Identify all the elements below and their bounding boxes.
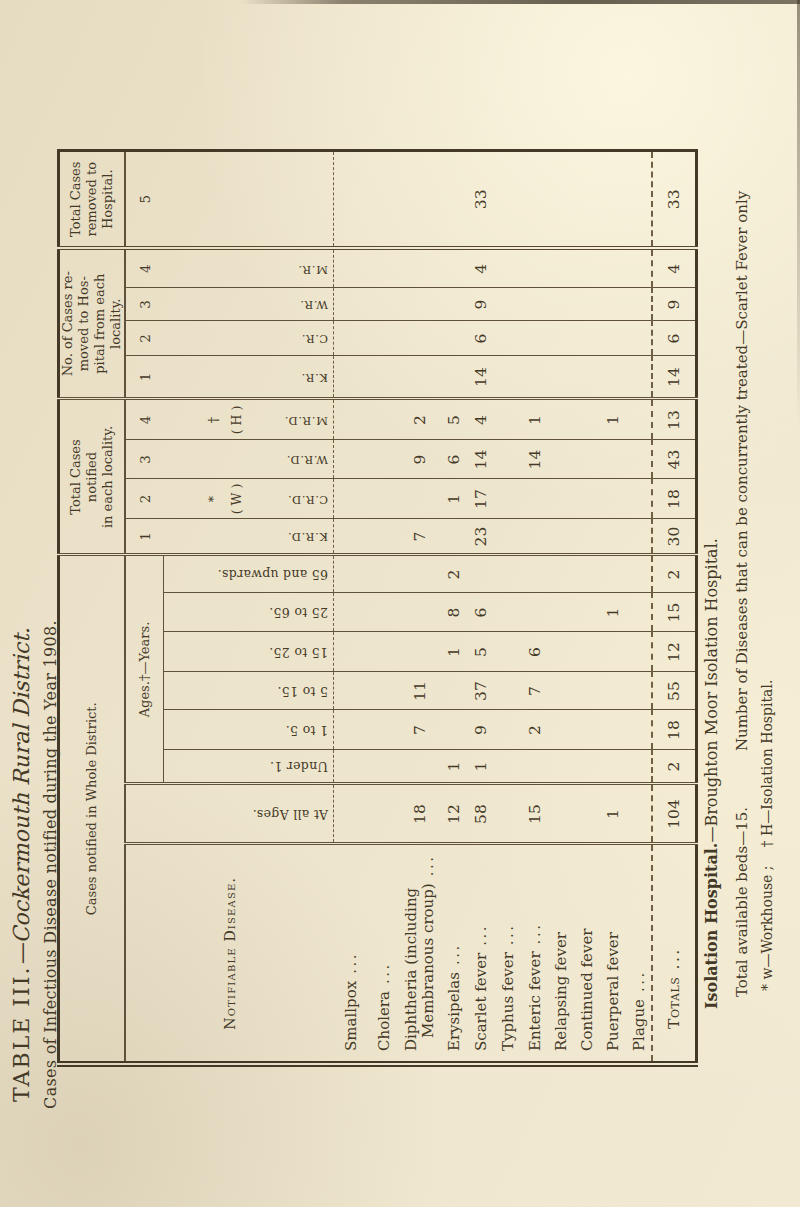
data-cell	[369, 248, 398, 288]
data-cell: 14	[652, 356, 696, 399]
infectious-disease-table: Cases notified in Whole District. Total …	[57, 150, 698, 1068]
data-cell	[548, 288, 574, 321]
data-cell	[626, 356, 652, 399]
data-cell: 6	[467, 593, 494, 632]
disease-name-cell: Diphtheria (includingMembranous croup)..…	[398, 844, 441, 1064]
data-cell	[548, 479, 574, 519]
data-cell	[398, 593, 441, 632]
locality-initials-krd: K.R.D.	[163, 519, 333, 555]
locality-initials-kr: K.R.	[163, 356, 333, 399]
age-label-65-up: 65 and upwards.	[163, 555, 333, 593]
data-cell	[333, 399, 369, 440]
data-cell: 7	[398, 710, 441, 750]
data-cell	[548, 248, 574, 288]
data-cell: 4	[467, 248, 494, 288]
data-cell	[574, 672, 599, 710]
data-cell	[521, 151, 548, 248]
data-cell	[599, 519, 626, 555]
data-cell	[398, 321, 441, 356]
disease-row: Erysipelas...121182165	[441, 151, 467, 1064]
data-cell	[599, 750, 626, 784]
header-removed-locality: No. of Cases re- moved to Hos- pital fro…	[59, 248, 126, 399]
data-cell	[369, 672, 398, 710]
data-cell	[398, 288, 441, 321]
col-number-total-removed: 5	[125, 151, 163, 248]
data-cell	[599, 632, 626, 672]
col-number-crd: 2	[125, 479, 163, 519]
data-cell: 7	[398, 519, 441, 555]
data-cell	[574, 519, 599, 555]
data-cell	[574, 710, 599, 750]
isolation-hospital-mark: †( H )	[203, 401, 248, 440]
col-number-kr: 1	[125, 356, 163, 399]
data-cell	[599, 672, 626, 710]
data-cell	[398, 750, 441, 784]
header-notified-locality: Total Cases notified in each locality.	[59, 399, 126, 555]
locality-initials-crd: *( W ) C.R.D.	[163, 479, 333, 519]
data-cell: 18	[398, 784, 441, 844]
data-cell	[369, 479, 398, 519]
data-cell	[333, 440, 369, 479]
data-cell	[398, 479, 441, 519]
data-cell	[494, 519, 521, 555]
data-cell	[369, 710, 398, 750]
data-cell: 6	[652, 321, 696, 356]
disease-name-cell: Cholera...	[369, 844, 398, 1064]
data-cell	[333, 593, 369, 632]
data-cell	[521, 555, 548, 593]
data-cell	[599, 248, 626, 288]
data-cell: 5	[441, 399, 467, 440]
data-cell	[494, 672, 521, 710]
data-cell	[441, 710, 467, 750]
data-cell	[441, 356, 467, 399]
data-cell	[548, 593, 574, 632]
disease-name-cell: Erysipelas...	[441, 844, 467, 1064]
data-cell: 14	[467, 440, 494, 479]
locality-initials-wr: W.R.	[163, 288, 333, 321]
header-whole-district: Cases notified in Whole District.	[59, 555, 126, 1064]
data-cell	[521, 750, 548, 784]
header-at-all-ages: At all Ages.	[125, 784, 333, 844]
data-cell	[574, 555, 599, 593]
data-cell	[548, 672, 574, 710]
footnote-beds: Total available beds—15.Number of Diseas…	[733, 191, 751, 997]
data-cell	[626, 151, 652, 248]
data-cell	[333, 151, 369, 248]
data-cell: 13	[652, 399, 696, 440]
data-cell	[574, 288, 599, 321]
data-cell: 1	[467, 750, 494, 784]
table-number: TABLE III.	[9, 966, 34, 1102]
data-cell	[599, 151, 626, 248]
data-cell	[626, 519, 652, 555]
disease-row: Enteric fever...15276141	[521, 151, 548, 1064]
data-cell	[521, 288, 548, 321]
page-title-block: TABLE III.—Cockermouth Rural District. C…	[9, 562, 60, 1167]
data-cell	[521, 248, 548, 288]
data-cell: 2	[652, 555, 696, 593]
data-cell	[548, 519, 574, 555]
data-cell: 1	[599, 399, 626, 440]
data-cell	[494, 440, 521, 479]
data-cell	[626, 479, 652, 519]
disease-name-cell: Puerperal fever	[599, 844, 626, 1064]
age-label-5-15: 5 to 15.	[163, 672, 333, 710]
data-cell: 58	[467, 784, 494, 844]
data-cell: 33	[652, 151, 696, 248]
age-label-25-65: 25 to 65.	[163, 593, 333, 632]
data-cell	[441, 248, 467, 288]
footnote-isolation-hospital: Isolation Hospital.—Broughton Moor Isola…	[702, 538, 721, 1009]
data-cell: 4	[652, 248, 696, 288]
data-cell	[626, 672, 652, 710]
data-cell	[494, 784, 521, 844]
data-cell	[521, 593, 548, 632]
data-cell	[574, 593, 599, 632]
data-cell: 2	[521, 710, 548, 750]
totals-row: Totals...1042185512152301843131469433	[652, 151, 696, 1064]
data-cell	[494, 750, 521, 784]
data-cell: 1	[521, 399, 548, 440]
data-cell: 1	[441, 750, 467, 784]
disease-row: Puerperal fever111	[599, 151, 626, 1064]
data-cell	[626, 710, 652, 750]
data-cell	[521, 321, 548, 356]
data-cell: 17	[467, 479, 494, 519]
data-cell	[574, 784, 599, 844]
data-cell	[467, 555, 494, 593]
data-cell	[574, 632, 599, 672]
data-cell	[441, 288, 467, 321]
data-cell	[369, 151, 398, 248]
data-cell: 7	[521, 672, 548, 710]
data-cell: 6	[521, 632, 548, 672]
data-cell: 43	[652, 440, 696, 479]
data-cell: 6	[467, 321, 494, 356]
data-cell	[599, 440, 626, 479]
data-cell	[599, 555, 626, 593]
data-cell: 12	[441, 784, 467, 844]
data-cell	[369, 440, 398, 479]
data-cell	[548, 784, 574, 844]
data-cell	[333, 632, 369, 672]
disease-row: Continued fever	[574, 151, 599, 1064]
data-cell: 9	[652, 288, 696, 321]
data-cell: 18	[652, 479, 696, 519]
data-cell	[574, 399, 599, 440]
data-cell	[369, 321, 398, 356]
locality-initials-mrd: †( H ) M.R.D.	[163, 399, 333, 440]
disease-row: Scarlet fever...5819375623171441469433	[467, 151, 494, 1064]
data-cell	[369, 399, 398, 440]
data-cell	[626, 555, 652, 593]
locality-initials-wrd: W.R.D.	[163, 440, 333, 479]
data-cell: 33	[467, 151, 494, 248]
data-cell: 14	[467, 356, 494, 399]
disease-name-cell: Continued fever	[574, 844, 599, 1064]
disease-name-cell: Totals...	[652, 844, 696, 1064]
data-cell: 14	[521, 440, 548, 479]
data-cell: 9	[398, 440, 441, 479]
data-cell	[494, 632, 521, 672]
disease-row: Typhus fever...	[494, 151, 521, 1064]
data-cell	[494, 288, 521, 321]
data-cell: 9	[467, 710, 494, 750]
data-cell	[369, 555, 398, 593]
data-cell	[398, 248, 441, 288]
data-cell	[494, 479, 521, 519]
data-cell: 1	[441, 479, 467, 519]
footnote-abbreviations: * w—Workhouse ;† H—Isolation Hospital.	[759, 680, 775, 991]
data-cell: 2	[652, 750, 696, 784]
data-cell: 2	[398, 399, 441, 440]
data-cell	[333, 321, 369, 356]
data-cell: 37	[467, 672, 494, 710]
scanned-report-page: { "title": { "table_no": "TABLE III.", "…	[0, 0, 800, 1207]
disease-name-cell: Relapsing fever	[548, 844, 574, 1064]
disease-name-cell: Smallpox...	[333, 844, 369, 1064]
header-ages-years: Ages.†—Years.	[125, 555, 163, 784]
data-cell	[441, 672, 467, 710]
data-cell	[441, 321, 467, 356]
col-number-mr: 4	[125, 248, 163, 288]
data-cell	[369, 750, 398, 784]
data-cell	[521, 356, 548, 399]
data-cell	[548, 151, 574, 248]
data-cell	[626, 248, 652, 288]
data-cell	[369, 632, 398, 672]
table-header: Cases notified in Whole District. Total …	[59, 151, 334, 1064]
col-number-wrd: 3	[125, 440, 163, 479]
data-cell	[548, 440, 574, 479]
data-cell	[548, 321, 574, 356]
data-cell	[398, 555, 441, 593]
data-cell	[494, 710, 521, 750]
data-cell: 8	[441, 593, 467, 632]
data-cell: 18	[652, 710, 696, 750]
data-cell	[599, 479, 626, 519]
data-cell	[369, 519, 398, 555]
data-cell	[333, 555, 369, 593]
scan-edge-top	[240, 0, 800, 4]
data-cell: 11	[398, 672, 441, 710]
data-cell: 104	[652, 784, 696, 844]
empty-header-cell	[163, 151, 333, 248]
disease-row: Cholera...	[369, 151, 398, 1064]
age-label-under-1: Under 1.	[163, 750, 333, 784]
data-cell: 4	[467, 399, 494, 440]
data-cell	[574, 750, 599, 784]
data-cell	[333, 479, 369, 519]
data-cell	[494, 593, 521, 632]
data-cell	[626, 288, 652, 321]
data-cell	[599, 288, 626, 321]
data-cell	[521, 519, 548, 555]
data-cell	[398, 632, 441, 672]
data-cell	[333, 710, 369, 750]
data-cell: 1	[599, 593, 626, 632]
data-cell	[626, 440, 652, 479]
data-cell: 12	[652, 632, 696, 672]
data-cell	[599, 710, 626, 750]
data-cell	[441, 151, 467, 248]
col-number-mrd: 4	[125, 399, 163, 440]
data-cell: 1	[599, 784, 626, 844]
locality-initials-cr: C.R.	[163, 321, 333, 356]
data-cell	[548, 710, 574, 750]
data-cell	[494, 151, 521, 248]
data-cell	[369, 288, 398, 321]
data-cell	[626, 593, 652, 632]
data-cell: 1	[441, 632, 467, 672]
data-cell	[441, 519, 467, 555]
data-cell	[333, 672, 369, 710]
data-cell	[574, 440, 599, 479]
locality-initials-mr: M.R.	[163, 248, 333, 288]
data-cell: 15	[652, 593, 696, 632]
disease-row: Diphtheria (includingMembranous croup)..…	[398, 151, 441, 1064]
header-total-removed: Total Cases removed to Hospital.	[59, 151, 126, 248]
data-cell	[548, 399, 574, 440]
data-cell	[521, 479, 548, 519]
data-cell	[369, 593, 398, 632]
page-title: TABLE III.—Cockermouth Rural District.	[9, 562, 34, 1167]
data-cell	[574, 151, 599, 248]
data-cell	[548, 632, 574, 672]
data-cell	[574, 356, 599, 399]
header-notifiable-disease: Notifiable Disease.	[125, 844, 333, 1064]
data-cell: 6	[441, 440, 467, 479]
data-cell	[398, 151, 441, 248]
data-cell	[494, 321, 521, 356]
data-cell: 9	[467, 288, 494, 321]
data-cell: 23	[467, 519, 494, 555]
disease-row: Plague...	[626, 151, 652, 1064]
data-cell	[333, 784, 369, 844]
workhouse-mark: *( W )	[203, 480, 248, 519]
col-number-wr: 3	[125, 288, 163, 321]
data-cell	[574, 248, 599, 288]
data-cell	[599, 356, 626, 399]
data-cell	[626, 321, 652, 356]
table-body: Smallpox...Cholera...Diphtheria (includi…	[333, 151, 696, 1064]
data-cell	[599, 321, 626, 356]
data-cell	[333, 519, 369, 555]
col-number-cr: 2	[125, 321, 163, 356]
data-cell: 5	[467, 632, 494, 672]
data-cell	[626, 632, 652, 672]
data-cell	[574, 321, 599, 356]
age-label-1-5: 1 to 5.	[163, 710, 333, 750]
data-cell	[574, 479, 599, 519]
data-cell	[548, 555, 574, 593]
rotated-page-content: TABLE III.—Cockermouth Rural District. C…	[0, 0, 800, 1207]
data-cell	[626, 399, 652, 440]
disease-name-cell: Typhus fever...	[494, 844, 521, 1064]
data-cell	[626, 750, 652, 784]
col-number-krd: 1	[125, 519, 163, 555]
data-cell: 2	[441, 555, 467, 593]
data-cell	[333, 288, 369, 321]
data-cell	[333, 248, 369, 288]
data-cell	[333, 356, 369, 399]
data-cell	[494, 248, 521, 288]
district-name: —Cockermouth Rural District.	[9, 627, 34, 965]
disease-name-cell: Plague...	[626, 844, 652, 1064]
data-cell	[369, 356, 398, 399]
age-label-15-25: 15 to 25.	[163, 632, 333, 672]
disease-row: Smallpox...	[333, 151, 369, 1064]
data-cell: 15	[521, 784, 548, 844]
disease-name-cell: Scarlet fever...	[467, 844, 494, 1064]
data-cell: 55	[652, 672, 696, 710]
data-cell	[333, 750, 369, 784]
data-cell	[369, 784, 398, 844]
data-cell	[494, 356, 521, 399]
data-cell	[494, 399, 521, 440]
data-cell	[398, 356, 441, 399]
disease-row: Relapsing fever	[548, 151, 574, 1064]
data-cell	[548, 356, 574, 399]
data-cell	[494, 555, 521, 593]
data-cell	[548, 750, 574, 784]
disease-name-cell: Enteric fever...	[521, 844, 548, 1064]
data-cell	[626, 784, 652, 844]
data-cell: 30	[652, 519, 696, 555]
